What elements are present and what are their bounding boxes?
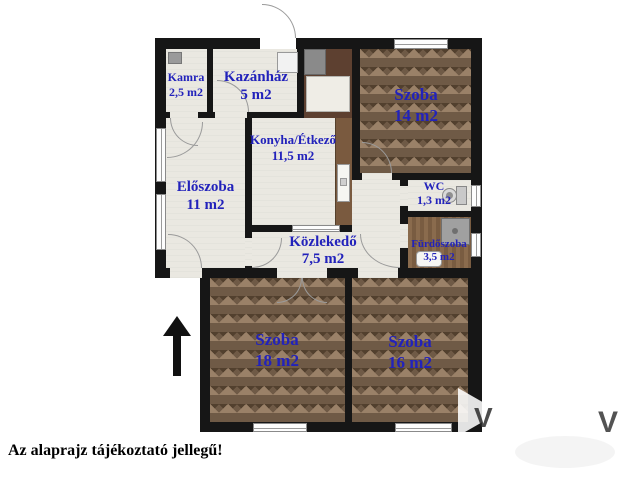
room-name: Fürdőszoba — [404, 238, 474, 251]
room-area: 16 m2 — [354, 353, 466, 374]
door-opening — [260, 38, 296, 49]
disclaimer-note: Az alaprajz tájékoztató jellegű! — [8, 442, 223, 460]
room-label-szoba18: Szoba 18 m2 — [213, 330, 341, 371]
watermark-letter: V — [598, 406, 618, 440]
window — [395, 423, 452, 432]
shelf — [168, 52, 182, 64]
north-arrow-icon — [163, 316, 191, 336]
window — [394, 39, 448, 49]
kitchen-cabinet-white — [306, 76, 350, 112]
stove — [304, 49, 326, 75]
window — [253, 423, 307, 432]
room-label-kozlekedo: Közlekedő 7,5 m2 — [258, 234, 388, 269]
room-floor-kozlekedo-east — [352, 180, 400, 232]
room-name: Szoba — [354, 332, 466, 353]
room-label-kamra: Kamra 2,5 m2 — [160, 70, 212, 99]
room-area: 7,5 m2 — [258, 251, 388, 268]
floor-plan: Kamra 2,5 m2 Kazánház 5 m2 Szoba 14 m2 K… — [0, 0, 640, 480]
window — [292, 225, 340, 232]
room-label-szoba16: Szoba 16 m2 — [354, 332, 466, 373]
room-name: WC — [408, 180, 460, 194]
door-opening — [277, 268, 327, 278]
room-area: 3,5 m2 — [404, 251, 474, 264]
room-area: 1,3 m2 — [408, 194, 460, 208]
sink-basin — [340, 178, 347, 186]
room-label-szoba14: Szoba 14 m2 — [364, 85, 468, 126]
north-arrow-icon — [173, 334, 181, 376]
door-opening — [245, 238, 252, 266]
watermark-ellipse — [515, 436, 615, 468]
room-label-kazanhaz: Kazánház 5 m2 — [214, 68, 298, 105]
room-name: Kazánház — [214, 68, 298, 86]
room-area: 14 m2 — [364, 106, 468, 127]
room-name: Közlekedő — [258, 234, 388, 251]
window — [156, 128, 166, 182]
shower-drain — [452, 228, 458, 234]
door-opening — [362, 173, 392, 180]
window — [156, 194, 166, 250]
room-name: Konyha/Étkező — [248, 132, 338, 148]
door-opening — [358, 268, 398, 278]
room-name: Kamra — [160, 70, 212, 85]
door-opening — [170, 268, 202, 278]
room-name: Szoba — [364, 85, 468, 106]
door-opening — [215, 112, 247, 118]
door-arc — [262, 4, 296, 38]
room-label-eloszoba: Előszoba 11 m2 — [166, 178, 245, 215]
room-area: 2,5 m2 — [160, 85, 212, 100]
room-name: Szoba — [213, 330, 341, 351]
room-area: 11 m2 — [166, 196, 245, 214]
window — [471, 185, 481, 207]
room-name: Előszoba — [166, 178, 245, 196]
room-label-furdoszoba: Fürdőszoba 3,5 m2 — [404, 238, 474, 264]
room-area: 18 m2 — [213, 351, 341, 372]
door-opening — [400, 186, 408, 206]
room-area: 5 m2 — [214, 86, 298, 104]
room-label-wc: WC 1,3 m2 — [408, 180, 460, 208]
room-label-konyha: Konyha/Étkező 11,5 m2 — [248, 132, 338, 164]
room-area: 11,5 m2 — [248, 148, 338, 164]
